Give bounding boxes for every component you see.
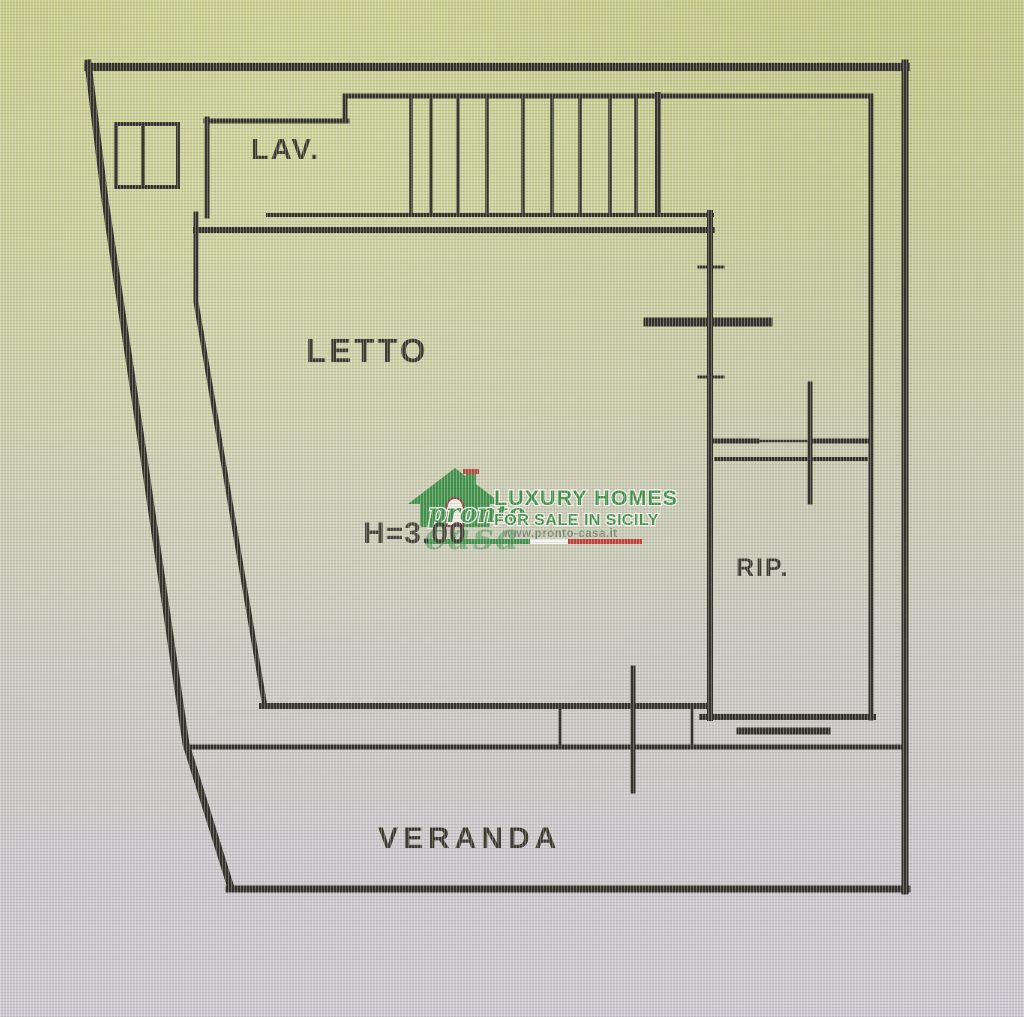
rip-walls [702, 96, 873, 731]
room-label-letto: LETTO [306, 332, 429, 369]
outer-walls [88, 63, 907, 891]
wall-letto-left [196, 214, 264, 701]
watermark-website: www.pronto-casa.it [502, 528, 618, 540]
floorplan-svg: casa pronto LUXURY HOMES FOR SALE IN SIC… [0, 0, 1024, 1017]
mid-band-walls [196, 215, 712, 230]
watermark-line2: FOR SALE IN SICILY [494, 512, 659, 529]
room-label-veranda: VERANDA [378, 822, 561, 855]
height-annotation: H=3.00 [363, 517, 467, 550]
watermark-line1: LUXURY HOMES [494, 486, 678, 510]
house-chimney-cap [463, 469, 479, 474]
staircase [411, 95, 658, 213]
room-label-rip: RIP. [736, 554, 789, 582]
entry-niche [116, 124, 178, 187]
floor-plan-photo: casa pronto LUXURY HOMES FOR SALE IN SIC… [0, 0, 1024, 1017]
flag-red [568, 539, 642, 544]
flag-white [530, 539, 568, 544]
inner-top-walls [116, 96, 871, 216]
room-label-lav: LAV. [251, 134, 320, 166]
letto-walls [196, 213, 768, 718]
